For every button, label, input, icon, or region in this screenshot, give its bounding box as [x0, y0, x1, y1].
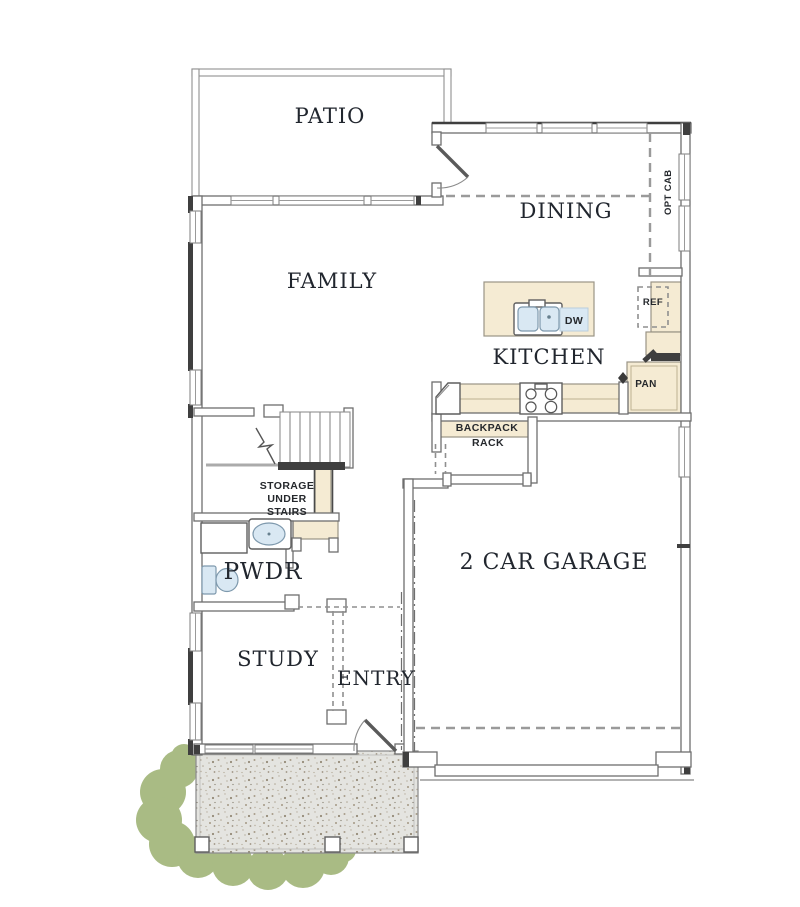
walls [188, 69, 694, 780]
cooktop-control [535, 384, 547, 389]
patio-label: PATIO [295, 104, 366, 128]
porch-slab [196, 751, 418, 853]
rack-wall-left [432, 414, 441, 452]
sink-basin-right [540, 307, 559, 331]
study-opening-jamb [327, 710, 346, 724]
wall-dark-seg [194, 745, 200, 754]
stair-storage-strip [315, 468, 331, 518]
pantry-label: PAN [635, 379, 657, 390]
floor-plan-page: PATIO DINING FAMILY KITCHEN 2 CAR GARAGE… [0, 0, 800, 907]
garage-label: 2 CAR GARAGE [460, 550, 649, 575]
powder-cabinet [201, 523, 247, 553]
front-porch [195, 751, 418, 853]
wall-dark-seg [416, 196, 421, 205]
powder-south-wall [194, 602, 294, 611]
island-sink [514, 300, 562, 335]
wall-west [192, 196, 202, 755]
garage-door [435, 765, 658, 776]
wall-dark-seg [188, 739, 193, 755]
refrigerator-label: REF [643, 297, 663, 308]
powder-label: PWDR [224, 559, 303, 585]
kitchen-label: KITCHEN [492, 345, 605, 369]
study-label: STUDY [237, 647, 319, 671]
stair-nosing-bar [278, 462, 345, 470]
sink-drain [547, 315, 551, 319]
garage-wall-tick [677, 544, 690, 548]
storage-label-line1: STORAGE [260, 480, 315, 492]
porch-post [195, 837, 209, 852]
front-door-leaf [365, 720, 396, 751]
patio-wall-top [192, 69, 451, 76]
backpack-label-line1: BACKPACK [456, 422, 519, 434]
floor-plan-drawing: PATIO DINING FAMILY KITCHEN 2 CAR GARAGE… [0, 0, 800, 907]
study-south-windows [205, 745, 313, 753]
family-north-windows [231, 196, 414, 205]
family-label: FAMILY [287, 269, 377, 293]
sink-tab [529, 300, 545, 307]
storage-label-line2: UNDER [267, 493, 306, 505]
wall-dark-seg [403, 752, 409, 767]
patio-door-jamb [432, 183, 441, 197]
patio-door-leaf [437, 146, 468, 177]
dining-windows [486, 123, 647, 133]
wall-dark-seg [683, 123, 690, 135]
sink-basin-left [518, 307, 538, 331]
stair-direction-arrow [256, 428, 275, 464]
optcab-bottom-wall [639, 268, 682, 276]
porch-post [404, 837, 418, 852]
toilet-tank [202, 566, 216, 594]
storage-label-line3: STAIRS [267, 506, 307, 518]
wall-dark-seg [188, 648, 193, 705]
bench-stub [329, 538, 338, 552]
opt-cab-label: OPT CAB [663, 169, 674, 215]
pantry-wall-stub [619, 382, 628, 414]
mudhall-jamb [443, 473, 451, 486]
dining-label: DINING [520, 199, 613, 223]
mudhall-wall-upper [445, 475, 531, 484]
bench-stub [292, 538, 301, 551]
staircase [206, 412, 350, 470]
study-opening-jamb [327, 599, 346, 612]
powder-door-jamb [285, 595, 299, 609]
stairs-top-wall [194, 408, 254, 416]
wall-dark-seg [188, 404, 193, 418]
patio-door-jamb [432, 132, 441, 145]
patio-door [437, 146, 468, 188]
patio-wall-left [192, 69, 199, 203]
oven-door-bar [651, 353, 680, 361]
garage-bottom-stub-right [656, 752, 691, 767]
mudhall-jamb [523, 473, 531, 486]
wall-dark-seg [188, 196, 193, 213]
entry-label: ENTRY [337, 666, 415, 690]
wall-dark-seg [188, 242, 193, 371]
hall-bench [292, 520, 338, 539]
powder-sink-drain [268, 533, 271, 536]
cooktop [520, 383, 562, 414]
backpack-label-line2: RACK [472, 437, 504, 449]
wall-garage-west [404, 479, 413, 756]
front-door [354, 720, 396, 751]
patio-wall-right [444, 69, 451, 127]
dishwasher-label: DW [565, 315, 583, 327]
porch-post [325, 837, 340, 852]
